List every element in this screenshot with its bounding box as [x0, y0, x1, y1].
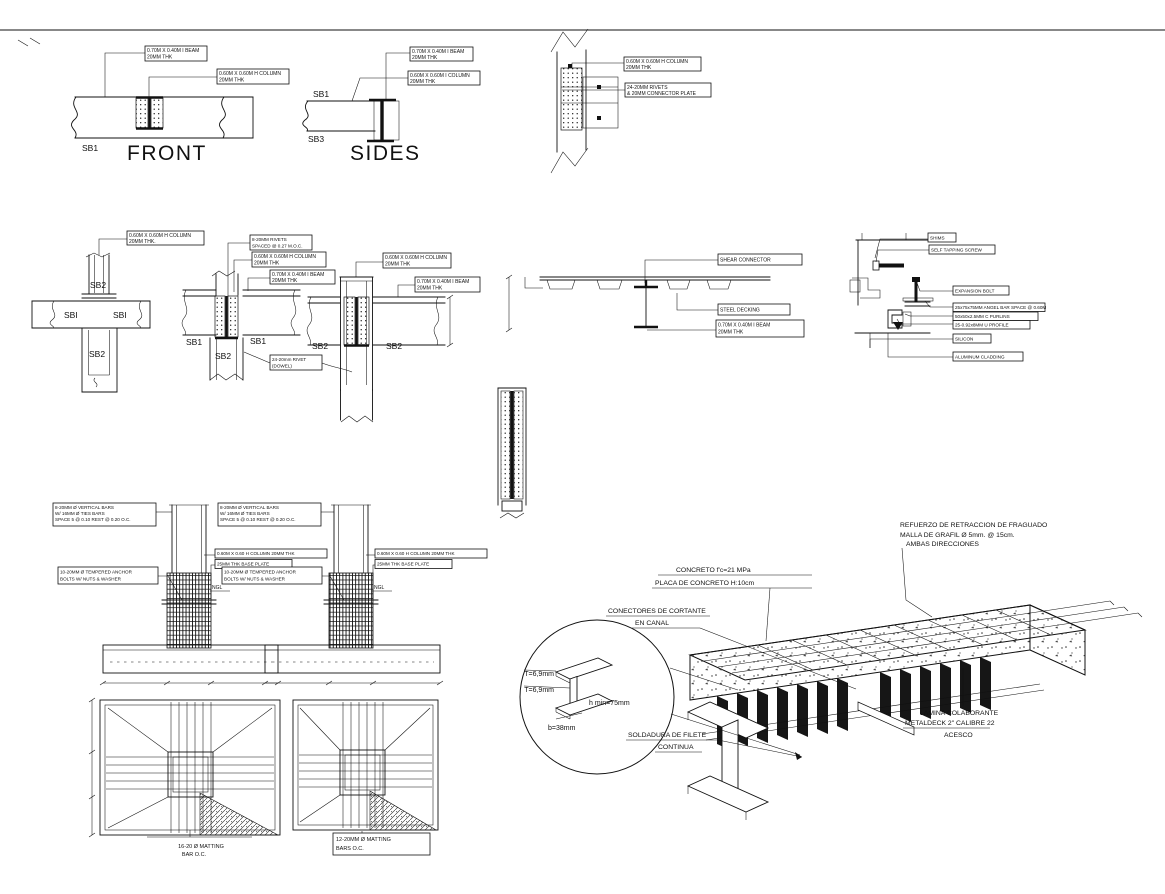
- callout-line: 20MM THK: [272, 278, 298, 284]
- member-label: SB2: [90, 280, 106, 290]
- callout-line: BOLTS W/ NUTS & WASHER: [224, 577, 286, 582]
- u-profile-callout: 25-0.92x8MM U PROFILE: [953, 321, 1030, 330]
- callout-line: W/ 16MM Ø TIES BARS: [220, 511, 270, 516]
- pedestal-left-anchor-callout: 10-20MM Ø TEMPERED ANCHOR BOLTS W/ NUTS …: [58, 567, 158, 584]
- steel-decking-callout: STEEL DECKING: [718, 304, 790, 315]
- expansion-bolt-callout: EXPANSION BOLT: [953, 286, 1009, 295]
- callout-line: 8-20MM RIVETS: [252, 237, 287, 242]
- callout-line: SHEAR CONNECTOR: [720, 257, 771, 263]
- callout-line: 0.60M X 0.60 H COLUMN 20MM THK: [217, 551, 295, 556]
- callout-line: 0.60M X 0.60 H COLUMN 20MM THK: [377, 551, 455, 556]
- pedestal-right-bars-callout: 8-20MM Ø VERTICAL BARS W/ 16MM Ø TIES BA…: [218, 503, 321, 526]
- shear-connector-callout: SHEAR CONNECTOR: [718, 254, 802, 265]
- callout-line: SPACE 5 @ 0.10 REST @ 0.20 O.C.: [55, 517, 131, 522]
- callout-line: 0.60M X 0.60M H COLUMN: [626, 59, 688, 65]
- plan-bars-horizontal: [299, 755, 432, 787]
- aluminum-cladding-callout: ALUMINUM CLADDING: [953, 352, 1023, 361]
- callout-line: 25x75x75MM ANGEL BAR SPACE @ 0.60M: [955, 305, 1046, 310]
- channel-flange-thickness-label: T=6,9mm: [524, 671, 554, 678]
- column-section-extension: [498, 388, 526, 518]
- view-title: SIDES: [350, 142, 421, 165]
- callout-line: 25MM THK BASE PLATE: [217, 562, 269, 567]
- pedestal-detail-left: 8-20MM Ø VERTICAL BARS W/ 16MM Ø TIES BA…: [53, 503, 327, 858]
- front-view-linework: [71, 53, 253, 138]
- member-label: SB2: [89, 349, 105, 359]
- callout-line: 20MM THK: [219, 78, 245, 84]
- ground-level-label: NGL: [374, 585, 385, 591]
- callout-line: 10-20MM Ø TEMPERED ANCHOR: [224, 570, 297, 575]
- annotation-line: CONCRETO f'c=21 MPa: [676, 567, 751, 574]
- detail1-rivet-note: 24-20mm RIVET (DOWEL): [270, 355, 322, 370]
- callout-line: 25-0.92x8MM U PROFILE: [955, 323, 1009, 328]
- column-splice-detail: 0.60M X 0.60M H COLUMN 20MM THK 24-20MM …: [551, 29, 711, 173]
- channel-web-thickness-label: T=6,9mm: [524, 687, 554, 694]
- matting-label-line: 16-20 Ø MATTING: [178, 844, 224, 850]
- member-label: SBI: [113, 310, 127, 320]
- deck-beam-callout: 0.70M X 0.40M I BEAM 20MM THK: [716, 320, 804, 337]
- callout-line: 0.70M X 0.40M I BEAM: [412, 49, 464, 55]
- angle-bar-callout: 25x75x75MM ANGEL BAR SPACE @ 0.60M: [953, 303, 1046, 312]
- sides-view: 0.70M X 0.40M I BEAM 20MM THK 0.60M X 0.…: [303, 47, 480, 165]
- callout-line: & 20MM CONNECTOR PLATE: [627, 91, 697, 97]
- callout-line: SELF TAPPING SCREW: [931, 247, 983, 252]
- cad-drawing-sheet: 0.70M X 0.40M I BEAM 20MM THK 0.60M X 0.…: [0, 0, 1165, 894]
- annotation-line: ACESCO: [944, 732, 973, 739]
- matting-label-line: BARS O.C.: [336, 846, 364, 852]
- annotation-line: CONTINUA: [658, 744, 694, 751]
- callout-line: 0.70M X 0.40M I BEAM: [272, 272, 324, 278]
- structural-details-canvas: 0.70M X 0.40M I BEAM 20MM THK 0.60M X 0.…: [0, 0, 1165, 894]
- callout-line: EXPANSION BOLT: [955, 288, 995, 293]
- callout-line: 20MM THK: [385, 261, 411, 267]
- callout-line: 0.60M X 0.60M I COLUMN: [410, 73, 470, 79]
- slab-linework: [688, 601, 1142, 820]
- callout-line: 20MM THK: [147, 55, 173, 61]
- splice-linework: [551, 29, 625, 173]
- deck-section: SHEAR CONNECTOR STEEL DECKING 0.70M X 0.…: [506, 254, 804, 337]
- callout-line: 0.70M X 0.40M I BEAM: [718, 323, 770, 329]
- detail1-column-callout: 0.60M X 0.60M H COLUMN 20MM THK: [252, 252, 326, 267]
- isometric-composite-slab: T=6,9mm T=6,9mm h min=75mm b=38mm REFUER…: [520, 522, 1142, 820]
- plan-bars-horizontal: [106, 757, 274, 789]
- beam-column-detail-2: 0.60M X 0.60M H COLUMN 20MM THK 0.70M X …: [307, 253, 526, 518]
- sides-column-callout: 0.60M X 0.60M I COLUMN 20MM THK: [408, 71, 480, 85]
- shims-callout: SHIMS: [928, 233, 956, 242]
- pedestal-right-matting-callout: 12-20MM Ø MATTING BARS O.C.: [333, 833, 430, 855]
- callout-line: 20MM THK: [417, 285, 443, 291]
- cladding-detail: SHIMS SELF TAPPING SCREW EXPANSION BOLT …: [850, 233, 1046, 361]
- plan-cross-linework: [32, 239, 150, 392]
- annotation-line: SOLDADURA DE FILETE: [628, 732, 707, 739]
- pedestal-left-bars-callout: 8-20MM Ø VERTICAL BARS W/ 16MM Ø TIES BA…: [53, 503, 156, 526]
- c-purlins-callout: 50x50x2.5MM C PURLINS: [953, 312, 1038, 321]
- callout-line: 20MM THK.: [129, 239, 156, 245]
- member-label: SB1: [82, 143, 98, 153]
- member-label: SB2: [215, 351, 231, 361]
- front-view: 0.70M X 0.40M I BEAM 20MM THK 0.60M X 0.…: [71, 46, 289, 165]
- pedestal-right-anchor-callout: 10-20MM Ø TEMPERED ANCHOR BOLTS W/ NUTS …: [222, 567, 322, 584]
- callout-line: 25MM THK BASE PLATE: [377, 562, 429, 567]
- front-beam-callout: 0.70M X 0.40M I BEAM 20MM THK: [145, 46, 207, 61]
- plan-cross-detail: 0.60M X 0.60M H COLUMN 20MM THK. SB2 SBI…: [32, 231, 204, 392]
- callout-line: 20MM THK: [626, 65, 652, 71]
- callout-line: 24-20MM RIVETS: [627, 85, 668, 91]
- callout-line: 50x50x2.5MM C PURLINS: [955, 314, 1010, 319]
- member-label: SB1: [186, 337, 202, 347]
- callout-line: 0.70M X 0.40M I BEAM: [147, 48, 199, 54]
- iso-i-beam: [688, 702, 768, 820]
- ground-level-label: NGL: [212, 585, 223, 591]
- detail2-column-callout: 0.60M X 0.60M H COLUMN 20MM THK: [383, 253, 451, 268]
- annotation-line: MALLA DE GRAFIL Ø 5mm. @ 15cm.: [900, 532, 1015, 539]
- callout-line: 20MM THK: [718, 330, 744, 336]
- callout-line: SHIMS: [930, 235, 945, 240]
- self-tapping-screw-callout: SELF TAPPING SCREW: [929, 245, 995, 254]
- callout-line: 0.60M X 0.60M H COLUMN: [219, 71, 281, 77]
- callout-line: 8-20MM Ø VERTICAL BARS: [55, 505, 114, 510]
- callout-line: 0.60M X 0.60M H COLUMN: [129, 233, 191, 239]
- member-label: SB1: [250, 336, 266, 346]
- member-label: SB3: [308, 134, 324, 144]
- callout-line: 0.60M X 0.60M H COLUMN: [254, 254, 316, 260]
- annotation-line: LAMINA COLABORANTE: [920, 710, 999, 717]
- callout-line: 0.60M X 0.60M H COLUMN: [385, 255, 447, 261]
- member-label: SBI: [64, 310, 78, 320]
- callout-line: 10-20MM Ø TEMPERED ANCHOR: [60, 570, 133, 575]
- callout-line: 20MM THK: [410, 79, 436, 85]
- callout-line: 20MM THK: [254, 260, 280, 266]
- matting-label-line: BAR O.C.: [182, 852, 207, 858]
- annotation-line: REFUERZO DE RETRACCION DE FRAGUADO: [900, 522, 1047, 529]
- pedestal-right-baseplate-callout: 25MM THK BASE PLATE: [375, 560, 452, 569]
- pedestal-right-column-callout: 0.60M X 0.60 H COLUMN 20MM THK: [375, 549, 487, 558]
- annotation-line: EN CANAL: [635, 620, 669, 627]
- shrinkage-annotation: REFUERZO DE RETRACCION DE FRAGUADO MALLA…: [900, 522, 1047, 617]
- callout-line: 8-20MM Ø VERTICAL BARS: [220, 505, 279, 510]
- sides-beam-callout: 0.70M X 0.40M I BEAM 20MM THK: [410, 47, 473, 61]
- member-label: SB1: [313, 89, 329, 99]
- callout-line: SPACE 5 @ 0.10 REST @ 0.20 O.C.: [220, 517, 296, 522]
- annotation-line: AMBAS DIRECCIONES: [906, 541, 979, 548]
- channel-width-label: b=38mm: [548, 725, 576, 732]
- member-label: SB2: [386, 341, 402, 351]
- callout-line: 0.70M X 0.40M I BEAM: [417, 279, 469, 285]
- silicon-callout: SILICON: [953, 334, 991, 343]
- matting-label-line: 12-20MM Ø MATTING: [336, 837, 391, 843]
- callout-line: (DOWEL): [272, 363, 292, 368]
- plan-column-callout: 0.60M X 0.60M H COLUMN 20MM THK.: [127, 231, 204, 245]
- callout-line: SPACED @ 0.27 M.O.C.: [252, 243, 303, 248]
- pedestal-left-column-callout: 0.60M X 0.60 H COLUMN 20MM THK: [215, 549, 327, 558]
- callout-line: ALUMINUM CLADDING: [955, 354, 1005, 359]
- callout-line: BOLTS W/ NUTS & WASHER: [60, 577, 122, 582]
- annotation-line: CONECTORES DE CORTANTE: [608, 608, 706, 615]
- callout-line: W/ 16MM Ø TIES BARS: [55, 511, 105, 516]
- detail1-rivets-callout: 8-20MM RIVETS SPACED @ 0.27 M.O.C.: [250, 235, 312, 250]
- view-title: FRONT: [127, 142, 207, 165]
- member-label: SB2: [312, 341, 328, 351]
- callout-line: 24-20mm RIVET: [272, 357, 306, 362]
- detail1-beam-callout: 0.70M X 0.40M I BEAM 20MM THK: [270, 270, 335, 284]
- concrete-annotation: CONCRETO f'c=21 MPa PLACA DE CONCRETO H:…: [652, 567, 812, 641]
- callout-line: SILICON: [955, 336, 973, 341]
- callout-line: STEEL DECKING: [720, 307, 760, 313]
- splice-rivets-callout: 24-20MM RIVETS & 20MM CONNECTOR PLATE: [625, 83, 711, 97]
- splice-column-callout: 0.60M X 0.60M H COLUMN 20MM THK: [624, 57, 701, 71]
- channel-height-label: h min=75mm: [589, 700, 630, 707]
- front-column-callout: 0.60M X 0.60M H COLUMN 20MM THK: [217, 69, 289, 84]
- beam-column-detail-1: 8-20MM RIVETS SPACED @ 0.27 M.O.C. 0.60M…: [182, 235, 352, 380]
- sheet-border: [0, 30, 1165, 46]
- detail2-beam-callout: 0.70M X 0.40M I BEAM 20MM THK: [415, 277, 480, 292]
- annotation-line: PLACA DE CONCRETO H:10cm: [655, 580, 755, 587]
- callout-line: 20MM THK: [412, 55, 438, 61]
- annotation-line: METALDECK 2" CALIBRE 22: [905, 720, 995, 727]
